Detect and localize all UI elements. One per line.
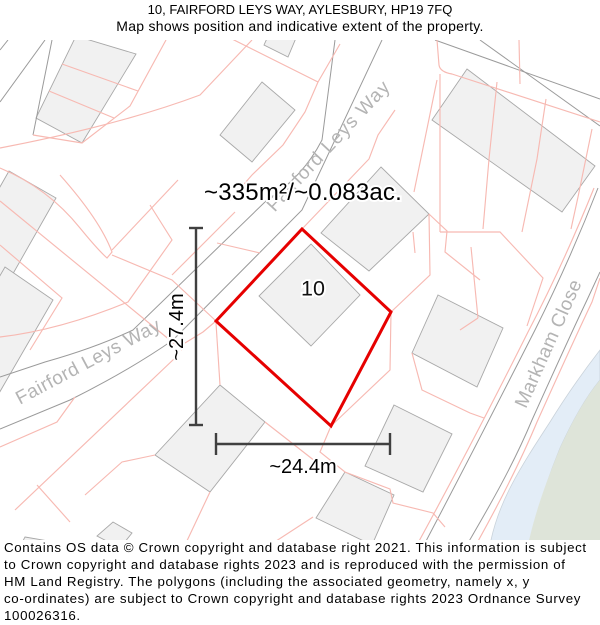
- svg-text:10: 10: [301, 277, 325, 301]
- svg-text:~24.4m: ~24.4m: [269, 456, 336, 478]
- svg-text:~335m²/~0.083ac.: ~335m²/~0.083ac.: [204, 179, 402, 206]
- svg-text:~27.4m: ~27.4m: [166, 293, 188, 360]
